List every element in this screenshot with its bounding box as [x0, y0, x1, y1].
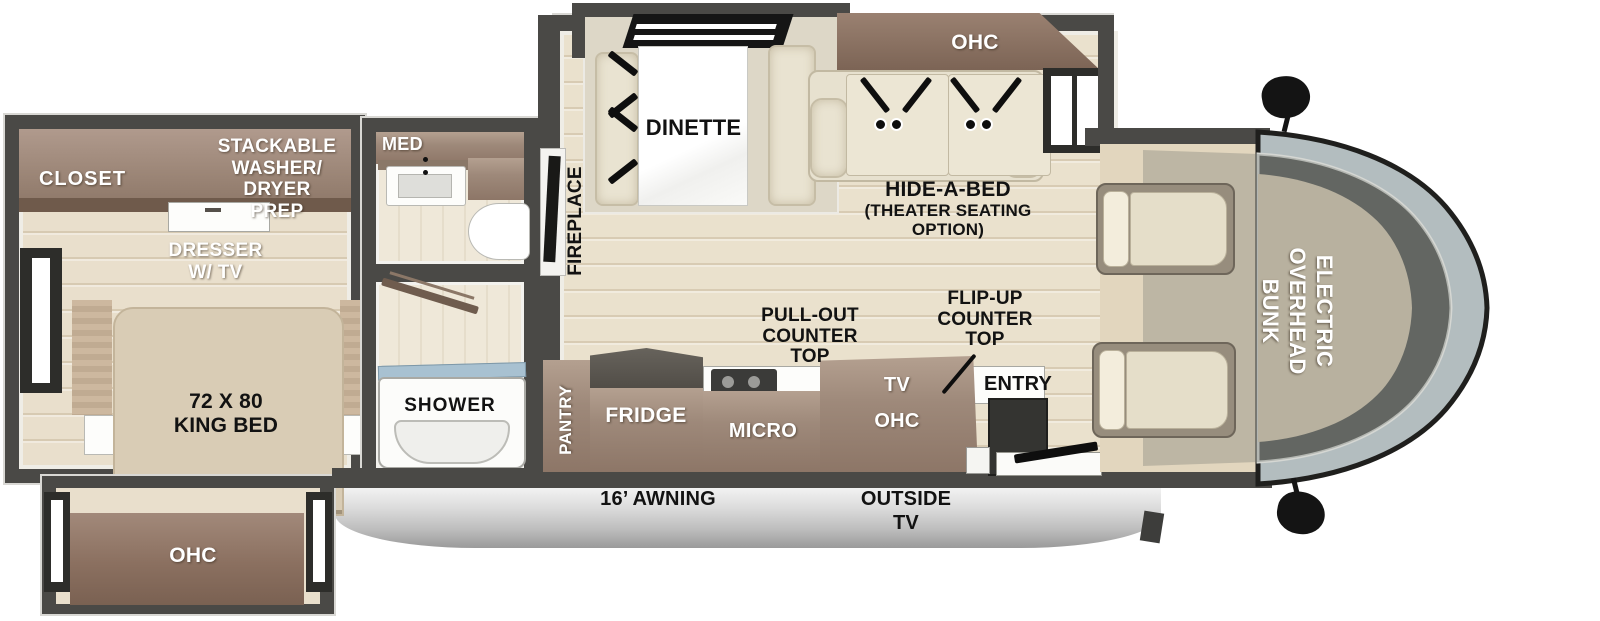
closet-label: CLOSET — [30, 168, 135, 190]
dresser-label: DRESSER W/ TV — [143, 240, 288, 284]
outside-tv-label: OUTSIDE TV — [845, 487, 967, 535]
fridge-label: FRIDGE — [592, 404, 700, 428]
hide-a-bed-sub-label: (THEATER SEATING OPTION) — [838, 201, 1058, 239]
med-label: MED — [382, 134, 452, 154]
pantry-label: PANTRY — [556, 365, 576, 475]
sofa-armrest-left — [810, 98, 848, 178]
pull-out-counter-label: PULL-OUT COUNTER TOP — [740, 306, 880, 368]
left-nightstand — [84, 415, 114, 455]
tv-ohc-label: OHC — [862, 410, 932, 432]
driver-seat-cushion — [1130, 192, 1227, 266]
rv-floorplan: 16’ AWNING OUTSIDE TV 72 X 80 KING BED O… — [0, 0, 1600, 621]
dinette-window-slat-1 — [635, 24, 777, 29]
dinette-window — [622, 14, 793, 48]
burner-2 — [748, 376, 760, 388]
bedroom-ohc-label: OHC — [158, 544, 228, 568]
bedroom-window-pane — [32, 258, 50, 383]
slideout-window-right-pane — [313, 500, 325, 582]
washer-dryer-label: STACKABLE WASHER/ DRYER PREP — [193, 136, 361, 222]
recline-dot-1b — [890, 118, 903, 131]
sofa-window-pane-1 — [1051, 76, 1072, 145]
fridge-cabinet — [590, 388, 703, 472]
shower-label: SHOWER — [385, 396, 515, 417]
overhead-bunk-label: ELECTRIC OVERHEAD BUNK — [1254, 208, 1338, 414]
recline-dot-1a — [874, 118, 887, 131]
entry-label: ENTRY — [968, 374, 1068, 396]
flip-up-counter-label: FLIP-UP COUNTER TOP — [926, 289, 1044, 351]
king-bed-label: 72 X 80 KING BED — [150, 390, 302, 438]
bath-sink-bowl — [398, 174, 452, 198]
recline-dot-2b — [980, 118, 993, 131]
faucet-dot-1 — [423, 157, 428, 162]
faucet-dot-2 — [423, 170, 428, 175]
living-ohc-label: OHC — [941, 31, 1009, 55]
dinette-slide-wall-left — [572, 3, 585, 58]
recline-dot-2a — [964, 118, 977, 131]
slideout-window-left-pane — [51, 500, 63, 582]
burner-1 — [722, 376, 734, 388]
entry-landing — [966, 447, 990, 474]
awning-band — [335, 483, 1161, 548]
awning-label: 16’ AWNING — [578, 489, 738, 511]
passenger-seat-cushion — [1126, 351, 1228, 429]
bed-left-curtain — [72, 300, 112, 415]
micro-label: MICRO — [718, 420, 808, 442]
dinette-window-slat-2 — [633, 35, 775, 40]
driver-seat — [1096, 183, 1235, 275]
toilet — [468, 203, 530, 260]
shower-pan-inner — [394, 420, 510, 464]
dinette-label: DINETTE — [636, 116, 751, 140]
passenger-seat — [1092, 342, 1236, 438]
passenger-seat-back — [1099, 350, 1125, 430]
hide-a-bed-label: HIDE-A-BED — [843, 179, 1053, 202]
tv-label: TV — [872, 374, 922, 396]
toilet-tank-cabinet — [468, 158, 524, 200]
driver-seat-back — [1103, 191, 1129, 267]
